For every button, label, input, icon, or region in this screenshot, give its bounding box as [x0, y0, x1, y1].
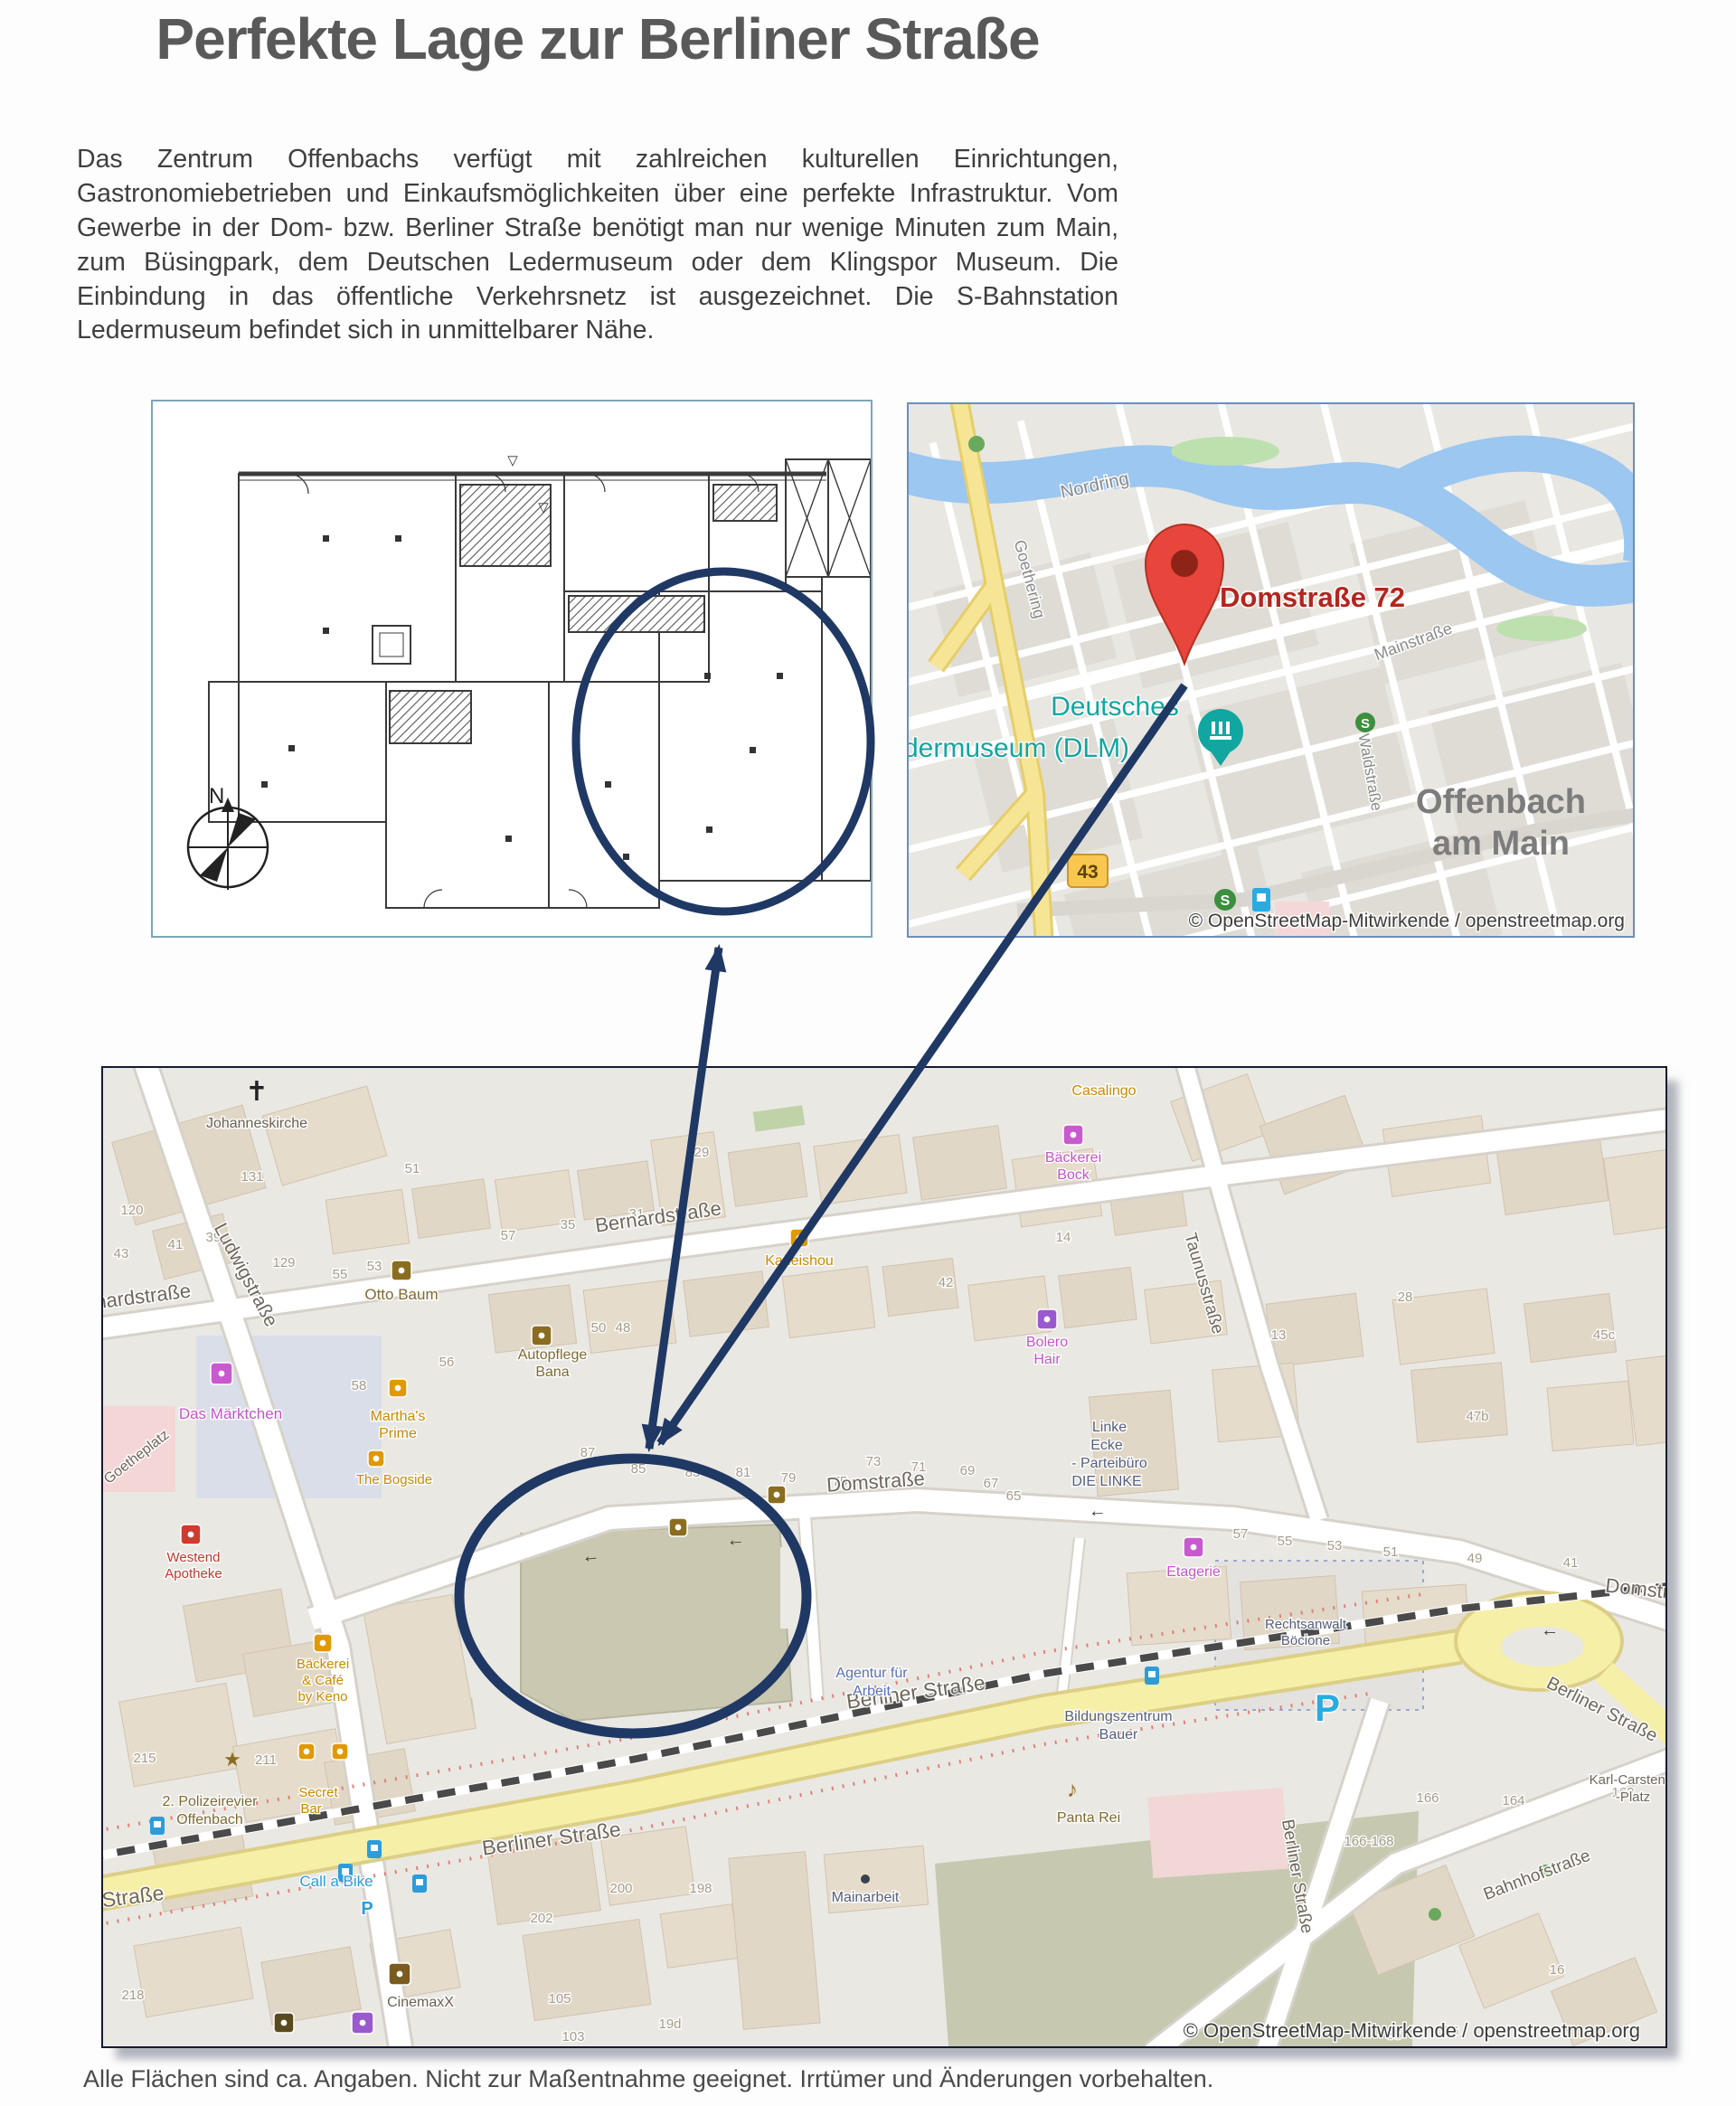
building-footprint	[684, 1271, 769, 1336]
building-footprint	[1059, 1267, 1137, 1327]
house-number: 47b	[1466, 1409, 1488, 1424]
house-number: 81	[736, 1465, 751, 1480]
poi-dot-icon	[861, 1875, 870, 1884]
poi-label: Das Märktchen	[179, 1405, 282, 1422]
disclaimer-footer: Alle Flächen sind ca. Angaben. Nicht zur…	[83, 2065, 1675, 2093]
svg-text:▽: ▽	[538, 500, 549, 515]
house-number: 41	[1563, 1555, 1579, 1571]
svg-text:S: S	[1221, 893, 1231, 909]
house-number: 56	[439, 1355, 455, 1370]
building-footprint	[728, 1143, 807, 1207]
svg-text:dermuseum (DLM): dermuseum (DLM)	[909, 733, 1129, 763]
poi-label: Arbeit	[853, 1684, 891, 1699]
expose-page: { "page": { "title": "Perfekte Lage zur …	[0, 0, 1736, 2106]
street-label: -Platz	[1616, 1790, 1650, 1805]
poi-label: Mainarbeit	[832, 1890, 900, 1905]
poi-label: P	[361, 1899, 373, 1919]
house-number: 65	[1006, 1488, 1022, 1504]
poi-label: Bäckerei	[1045, 1150, 1101, 1166]
house-number: 51	[405, 1161, 420, 1176]
house-number: 57	[501, 1228, 516, 1243]
building-footprint	[325, 1189, 410, 1253]
house-number: 69	[960, 1463, 976, 1478]
house-number: 103	[561, 2029, 584, 2045]
poi-label: 2. Polizeirevier	[163, 1794, 259, 1809]
house-number: 57	[1233, 1526, 1249, 1542]
floorplan-drawing: ▽▽ N	[153, 401, 871, 936]
oneway-arrow-icon: ←	[1088, 1501, 1107, 1522]
police-icon: ★	[223, 1748, 241, 1771]
oneway-arrow-icon: ←	[726, 1529, 745, 1550]
poi-label: Agentur für	[835, 1666, 908, 1681]
poi-label: Bar	[300, 1801, 321, 1817]
poi-label: Westend	[167, 1550, 221, 1565]
building-footprint	[729, 1852, 820, 2030]
locator-map-canvas: NordringGoetheringMainstraßeWaldstraße 4…	[909, 404, 1633, 936]
building-footprint	[782, 1266, 875, 1337]
building-footprint	[523, 1919, 651, 2020]
marker-label: Domstraße 72	[1220, 581, 1405, 613]
poi-label: Martha's	[371, 1409, 426, 1424]
compass-icon: N	[188, 784, 268, 890]
poi-label: Linke	[1092, 1420, 1127, 1435]
poi-label: Bauer	[1099, 1727, 1138, 1742]
house-number: 211	[255, 1752, 277, 1768]
house-number: 215	[133, 1751, 156, 1766]
oneway-arrow-icon: ←	[580, 1545, 600, 1567]
church-cross-icon: ✝	[245, 1077, 268, 1107]
building-footprint	[913, 1126, 1007, 1201]
house-number: 131	[241, 1169, 263, 1185]
poi-label: Etagerie	[1166, 1564, 1221, 1580]
poi-label: Prime	[379, 1426, 417, 1441]
poi-label: Casalingo	[1071, 1083, 1136, 1099]
house-number: 28	[1398, 1289, 1413, 1305]
poi-label: Bana	[535, 1365, 569, 1380]
house-number: 202	[530, 1911, 552, 1926]
area-map: ✝♪★←←←← 12013112955535157353129434139484…	[101, 1066, 1667, 2048]
poi-label: Hair	[1033, 1352, 1061, 1367]
house-number: 105	[548, 1991, 571, 2007]
house-number: 67	[984, 1476, 999, 1491]
house-number: 79	[781, 1470, 797, 1486]
house-number: 164	[1502, 1793, 1524, 1809]
svg-text:43: 43	[1077, 862, 1098, 883]
house-number: 129	[272, 1255, 295, 1270]
house-number: 16	[1550, 1962, 1565, 1978]
house-number: 41	[168, 1237, 184, 1252]
poi-label: Panta Rei	[1057, 1810, 1120, 1826]
poi-label: Böcione	[1281, 1633, 1330, 1648]
locator-map: NordringGoetheringMainstraßeWaldstraße 4…	[907, 402, 1635, 938]
svg-text:▽: ▽	[507, 453, 518, 468]
poi-label: by Keno	[297, 1689, 347, 1705]
floorplan-columns	[261, 535, 783, 860]
svg-text:S: S	[1361, 716, 1370, 732]
building-footprint	[968, 1276, 1052, 1341]
svg-text:Offenbach: Offenbach	[1416, 783, 1586, 821]
poi-label: P	[1315, 1686, 1340, 1729]
poi-label: Autopflege	[518, 1347, 588, 1363]
svg-text:Deutsches: Deutsches	[1051, 692, 1179, 722]
floorplan-figure: ▽▽ N	[151, 400, 873, 938]
route-badge: 43	[1068, 855, 1108, 887]
house-number: 58	[352, 1378, 367, 1393]
area-map-canvas: ✝♪★←←←← 12013112955535157353129434139484…	[103, 1068, 1665, 2046]
house-number: 73	[866, 1454, 882, 1469]
poi-label: Bock	[1057, 1167, 1090, 1183]
poi-label: The Bogside	[356, 1472, 432, 1487]
tree-icon	[1429, 1908, 1441, 1921]
house-number: 35	[561, 1217, 576, 1232]
house-number: 49	[1467, 1551, 1483, 1566]
building-footprint	[1603, 1150, 1665, 1235]
poi-label: Johanneskirche	[206, 1116, 307, 1131]
house-number: 83	[685, 1465, 701, 1480]
house-number: 45c	[1593, 1327, 1616, 1343]
house-number: 48	[616, 1320, 631, 1336]
house-number: 42	[939, 1275, 954, 1290]
house-number: 218	[121, 1988, 144, 2003]
house-number: 200	[609, 1881, 632, 1896]
building-footprint	[1411, 1363, 1508, 1442]
poi-label: Otto Baum	[364, 1286, 438, 1303]
poi-label: - Parteibüro	[1071, 1456, 1147, 1471]
house-number: 53	[1327, 1538, 1343, 1554]
street-label: Karl-Carstens-	[1590, 1772, 1665, 1788]
building-footprint	[583, 1280, 676, 1353]
poi-label: Offenbach	[176, 1812, 243, 1827]
house-number: 85	[631, 1461, 646, 1477]
poi-label: Rechtsanwalt	[1265, 1617, 1347, 1632]
house-number: 166-168	[1344, 1834, 1393, 1849]
compass-north-label: N	[209, 784, 224, 808]
highlighted-property-building	[521, 1525, 792, 1721]
house-number: 198	[689, 1881, 712, 1896]
house-number: 50	[591, 1320, 607, 1336]
house-number: 51	[1383, 1544, 1399, 1560]
poi-label: Call a Bike	[299, 1873, 373, 1890]
poi-label: Secret	[298, 1785, 338, 1800]
map-attribution: © OpenStreetMap-Mitwirkende / openstreet…	[1184, 2019, 1640, 2042]
music-note-icon: ♪	[1067, 1778, 1078, 1802]
house-number: 29	[694, 1145, 710, 1160]
house-number: 55	[333, 1267, 348, 1282]
oneway-arrow-icon: ←	[1541, 1620, 1559, 1640]
poi-label: Bildungszentrum	[1064, 1709, 1172, 1724]
map-attribution: © OpenStreetMap-Mitwirkende / openstreet…	[1189, 911, 1625, 931]
poi-label: Bäckerei	[297, 1657, 349, 1672]
poi-label: Ecke	[1090, 1438, 1123, 1453]
house-number: 55	[1278, 1534, 1293, 1549]
intro-paragraph: Das Zentrum Offenbachs verfügt mit zahlr…	[77, 143, 1118, 348]
building-footprint	[814, 1135, 907, 1205]
house-number: 53	[367, 1259, 382, 1274]
building-footprint	[660, 1904, 740, 1969]
house-number: 120	[120, 1203, 143, 1218]
house-number: 87	[580, 1445, 596, 1460]
poi-label: CinemaxX	[387, 1995, 454, 2010]
building-footprint	[1547, 1381, 1634, 1451]
house-number: 14	[1056, 1230, 1071, 1245]
house-number: 43	[114, 1246, 129, 1261]
page-title: Perfekte Lage zur Berliner Straße	[77, 5, 1118, 72]
poi-label: DIE LINKE	[1071, 1474, 1141, 1489]
house-number: 19d	[658, 2016, 681, 2032]
svg-text:am Main: am Main	[1432, 825, 1570, 863]
poi-label: & Café	[302, 1673, 344, 1688]
poi-label: Apotheke	[165, 1566, 222, 1582]
building-footprint	[119, 1683, 241, 1786]
house-number: 13	[1271, 1327, 1287, 1343]
poi-label: Bolero	[1026, 1335, 1068, 1350]
house-number: 166	[1416, 1790, 1439, 1806]
building-footprint	[412, 1179, 491, 1239]
poi-label: Kaneishou	[765, 1253, 834, 1269]
